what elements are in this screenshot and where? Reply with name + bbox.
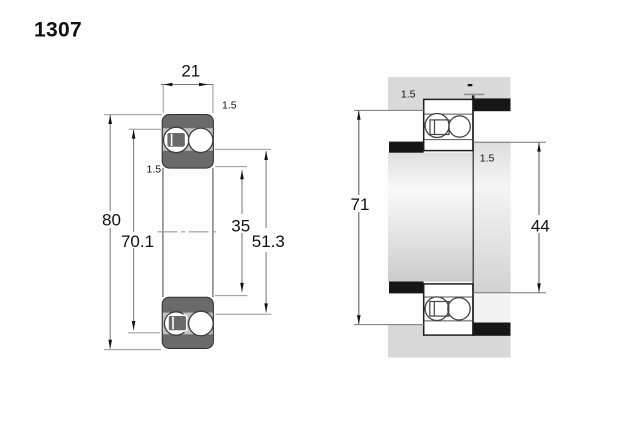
svg-text:1.5: 1.5 bbox=[222, 100, 237, 112]
svg-text:21: 21 bbox=[181, 62, 200, 81]
svg-text:51.3: 51.3 bbox=[252, 232, 285, 251]
svg-text:71: 71 bbox=[351, 195, 370, 214]
svg-text:44: 44 bbox=[531, 217, 550, 236]
svg-text:1307: 1307 bbox=[34, 19, 82, 42]
svg-text:1.5: 1.5 bbox=[147, 164, 162, 176]
svg-text:35: 35 bbox=[231, 217, 250, 236]
svg-text:1.5: 1.5 bbox=[480, 153, 495, 165]
svg-text:70.1: 70.1 bbox=[121, 232, 154, 251]
svg-text:80: 80 bbox=[102, 211, 121, 230]
svg-text:1.5: 1.5 bbox=[401, 89, 416, 101]
